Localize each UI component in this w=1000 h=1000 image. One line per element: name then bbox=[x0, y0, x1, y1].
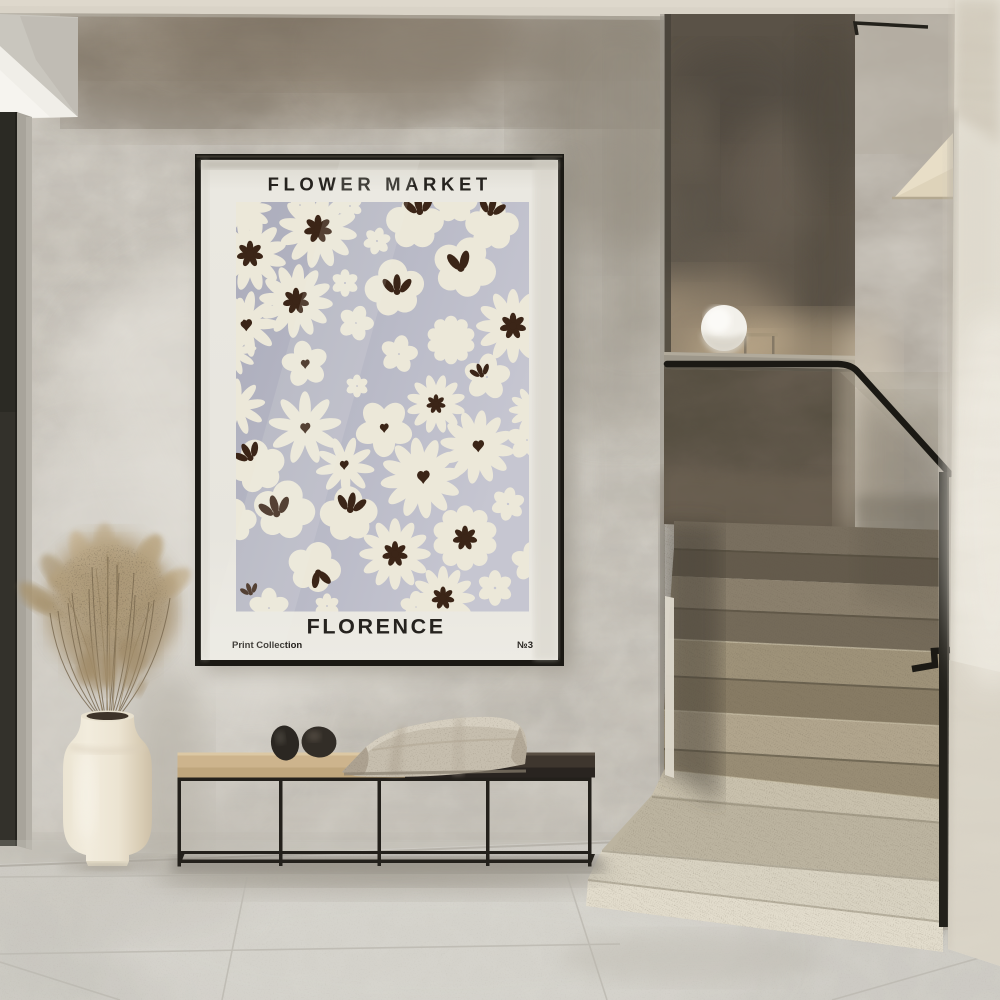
svg-text:FLORENCE: FLORENCE bbox=[307, 615, 446, 639]
svg-text:№3: №3 bbox=[517, 640, 533, 651]
